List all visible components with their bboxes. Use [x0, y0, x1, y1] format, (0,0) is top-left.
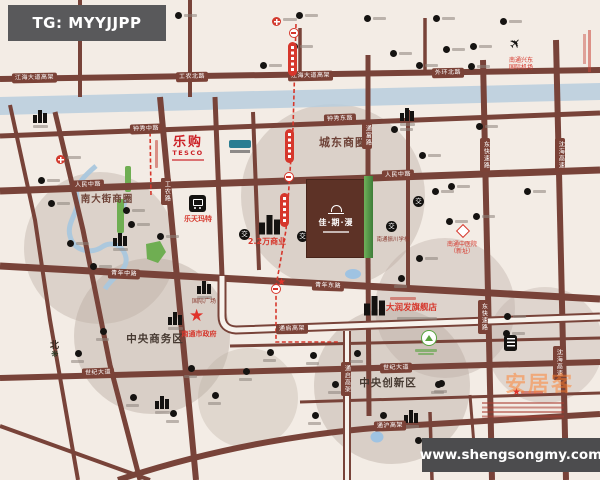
road-label-shiji-e: 世纪大道 — [380, 363, 412, 374]
road-label-gongnong-n: 工农北路 — [176, 72, 208, 83]
airport-plane-icon: ✈ — [506, 34, 526, 54]
tesco-underline — [172, 159, 204, 161]
road-label-shiji-w: 世纪大道 — [82, 367, 114, 378]
metro-line2-label-smudge — [155, 140, 158, 168]
anjuke-watermark: 安居客 — [505, 368, 574, 398]
metro-station-icon — [284, 172, 294, 182]
compass-tree-icon: ❋ — [51, 350, 59, 360]
road-label-jianghai-w: 江海大道高架 — [12, 73, 57, 84]
government-star-icon: ★ — [189, 308, 204, 325]
metro-station-name-capsule — [288, 42, 297, 76]
road-label-zhongxiu-e: 钟秀东路 — [324, 113, 356, 124]
district-innovation: 中央创新区 — [343, 375, 433, 390]
metro-station-name-capsule — [285, 129, 294, 163]
government-label: 南通市政府 — [168, 329, 230, 339]
park-label-smudge — [418, 353, 434, 355]
disclaimer-text-smudge — [482, 402, 564, 418]
metro-station-name-capsule — [280, 193, 289, 227]
road-label-qingnian-m: 青年中路 — [108, 268, 140, 279]
property-subtitle-smudge — [323, 231, 349, 233]
corner-red-text-smudge — [583, 34, 586, 64]
rtmart-buildings-icon — [364, 296, 387, 316]
commercial-buildings-icon — [259, 215, 282, 235]
road-label-gongnong: 工农路 — [161, 178, 171, 205]
rtmart-sub-smudge — [397, 317, 437, 320]
property-block[interactable]: 佳·期·漫 — [306, 179, 366, 258]
road-label-dongkuaisu-1: 东快速路 — [480, 138, 490, 172]
tesco-en-label: TESCO — [166, 149, 210, 158]
road-label-tongqi: 通启高架 — [276, 324, 308, 335]
school-icon: 交 — [386, 221, 397, 232]
road-label-qingnian-e: 青年东路 — [312, 280, 344, 291]
rtmart-small-smudge — [390, 297, 416, 300]
property-logo-icon — [328, 205, 344, 214]
road-label-tongqi-v: 通启高架 — [341, 362, 351, 396]
road-label-zhongxiu-m: 钟秀中路 — [130, 123, 162, 134]
road-label-shenhai-1: 沈海高速 — [555, 138, 565, 172]
corner-red-text-smudge — [588, 30, 591, 72]
metro-station-icon — [289, 28, 299, 38]
road-label-tonghu: 通沪高架 — [374, 420, 406, 431]
tg-contact-badge[interactable]: TG: MYYJJPP — [8, 5, 166, 41]
school-label: 南通振川学校 — [364, 235, 422, 243]
road-label-waihuan-n: 外环北路 — [432, 68, 464, 79]
airport-label-2: 国际机场 — [503, 62, 539, 71]
tesco-landmark: 乐购 TESCO — [166, 136, 210, 161]
lotte-mart-label: 乐天玛特 — [172, 214, 224, 224]
property-greenbelt — [364, 176, 373, 258]
road-label-renmin-e: 人民中路 — [382, 169, 414, 180]
website-badge[interactable]: www.shengsongmy.com — [422, 438, 600, 472]
district-nandajie: 南大街商圈 — [67, 191, 147, 205]
park-label-smudge — [415, 349, 437, 352]
property-name: 佳·期·漫 — [318, 217, 353, 228]
road-label-dongkuaisu-2: 东快速路 — [478, 300, 488, 334]
hospital-label-2: （新址） — [436, 246, 488, 255]
commercial-area-label: 2.2万商业 — [238, 236, 296, 247]
hotel-badge-icon — [229, 140, 251, 148]
tesco-cn-label: 乐购 — [166, 136, 210, 149]
shopping-cart-icon — [189, 195, 206, 212]
intl-plaza-label: 国际广场 — [182, 296, 226, 305]
road-label-tongfu: 通富路 — [362, 122, 372, 149]
road-label-renmin-w: 人民中路 — [72, 179, 104, 190]
hospital-cross-icon — [456, 224, 470, 238]
metro-station-icon — [271, 284, 281, 294]
location-map: 交交交★★ 佳·期·漫 江海大道高架 工农北路 江海大道高架 外环北路 钟秀中路… — [0, 0, 600, 480]
map-label-layer: 佳·期·漫 江海大道高架 工农北路 江海大道高架 外环北路 钟秀中路 钟秀东路 … — [0, 0, 600, 480]
rtmart-label: 大润发旗舰店 — [386, 301, 437, 313]
